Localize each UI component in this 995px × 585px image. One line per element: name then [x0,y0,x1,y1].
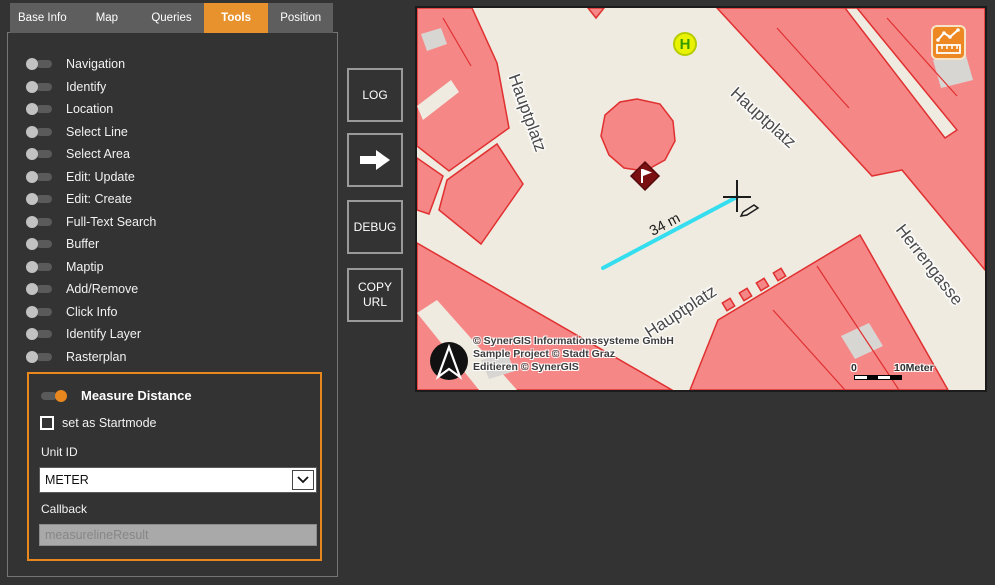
svg-text:H: H [680,36,691,53]
tool-label: Full-Text Search [66,215,156,229]
tool-label: Identify [66,80,106,94]
tool-toggle-row[interactable]: Select Area [26,143,156,166]
unit-id-label: Unit ID [41,445,78,459]
toggle-switch[interactable] [26,81,52,93]
startmode-label: set as Startmode [62,416,157,430]
tab-tools[interactable]: Tools [204,3,269,33]
tab-base-info[interactable]: Base Info [10,3,75,33]
tool-toggle-row[interactable]: Rasterplan [26,346,156,369]
measure-distance-title: Measure Distance [81,388,192,403]
toggle-switch[interactable] [26,171,52,183]
tool-toggle-row[interactable]: Identify [26,76,156,99]
tool-label: Navigation [66,57,125,71]
toggle-switch[interactable] [26,306,52,318]
tool-label: Location [66,102,113,116]
tool-toggle-row[interactable]: Location [26,98,156,121]
measure-distance-toggle[interactable] [41,390,67,402]
right-arrow-icon [358,149,392,171]
dropdown-arrow-icon[interactable] [292,470,314,490]
toggle-switch[interactable] [26,126,52,138]
tool-label: Buffer [66,237,99,251]
unit-select-value: METER [40,473,292,487]
copy-url-button[interactable]: COPY URL [347,268,403,322]
compass-icon [430,342,468,380]
tool-label: Edit: Update [66,170,135,184]
tool-label: Add/Remove [66,282,138,296]
callback-input[interactable]: measurelineResult [39,524,317,546]
tool-label: Identify Layer [66,327,141,341]
toggle-switch[interactable] [26,58,52,70]
tool-label: Click Info [66,305,117,319]
tab-position[interactable]: Position [268,3,333,33]
tool-toggle-row[interactable]: Maptip [26,256,156,279]
chart-ruler-icon [933,27,964,58]
toggle-switch[interactable] [26,351,52,363]
toggle-switch[interactable] [26,238,52,250]
tool-toggle-row[interactable]: Click Info [26,301,156,324]
tool-toggle-row[interactable]: Add/Remove [26,278,156,301]
tool-label: Edit: Create [66,192,132,206]
tool-label: Select Area [66,147,130,161]
startmode-checkbox[interactable] [40,416,54,430]
tool-label: Select Line [66,125,128,139]
tools-panel: Navigation Identify Location Select Line… [7,32,338,577]
toggle-switch[interactable] [26,283,52,295]
map-drawing: H [417,8,985,390]
toggle-switch[interactable] [26,103,52,115]
tab-queries[interactable]: Queries [139,3,204,33]
tool-toggle-row[interactable]: Full-Text Search [26,211,156,234]
tool-toggle-row[interactable]: Edit: Create [26,188,156,211]
scale-start-label: 0 [851,362,857,374]
toggle-switch[interactable] [26,261,52,273]
log-button[interactable]: LOG [347,68,403,122]
toggle-switch[interactable] [26,216,52,228]
measure-distance-section: Measure Distance set as Startmode Unit I… [27,372,322,561]
toggle-switch[interactable] [26,148,52,160]
tool-label: Maptip [66,260,104,274]
debug-button[interactable]: DEBUG [347,200,403,254]
tab-bar: Base Info Map Queries Tools Position [10,3,333,33]
map-attribution: © SynerGIS Informationssysteme GmbH Samp… [473,335,674,374]
callback-label: Callback [41,502,87,516]
toggle-switch[interactable] [26,328,52,340]
tool-toggle-row[interactable]: Edit: Update [26,166,156,189]
tool-toggle-row[interactable]: Identify Layer [26,323,156,346]
toggle-switch[interactable] [26,193,52,205]
unit-select[interactable]: METER [39,467,317,493]
map-canvas[interactable]: H Hauptplatz Hauptplatz Hauptplatz Herre… [415,6,987,392]
tool-toggle-row[interactable]: Navigation [26,53,156,76]
tools-toggle-list: Navigation Identify Location Select Line… [26,53,156,368]
tool-toggle-row[interactable]: Select Line [26,121,156,144]
measure-profile-button[interactable] [931,25,966,60]
tab-map[interactable]: Map [75,3,140,33]
bus-stop-icon: H [674,33,696,55]
scale-bar [854,375,902,380]
forward-button[interactable] [347,133,403,187]
tool-toggle-row[interactable]: Buffer [26,233,156,256]
scale-end-label: 10Meter [894,362,934,374]
tool-label: Rasterplan [66,350,126,364]
